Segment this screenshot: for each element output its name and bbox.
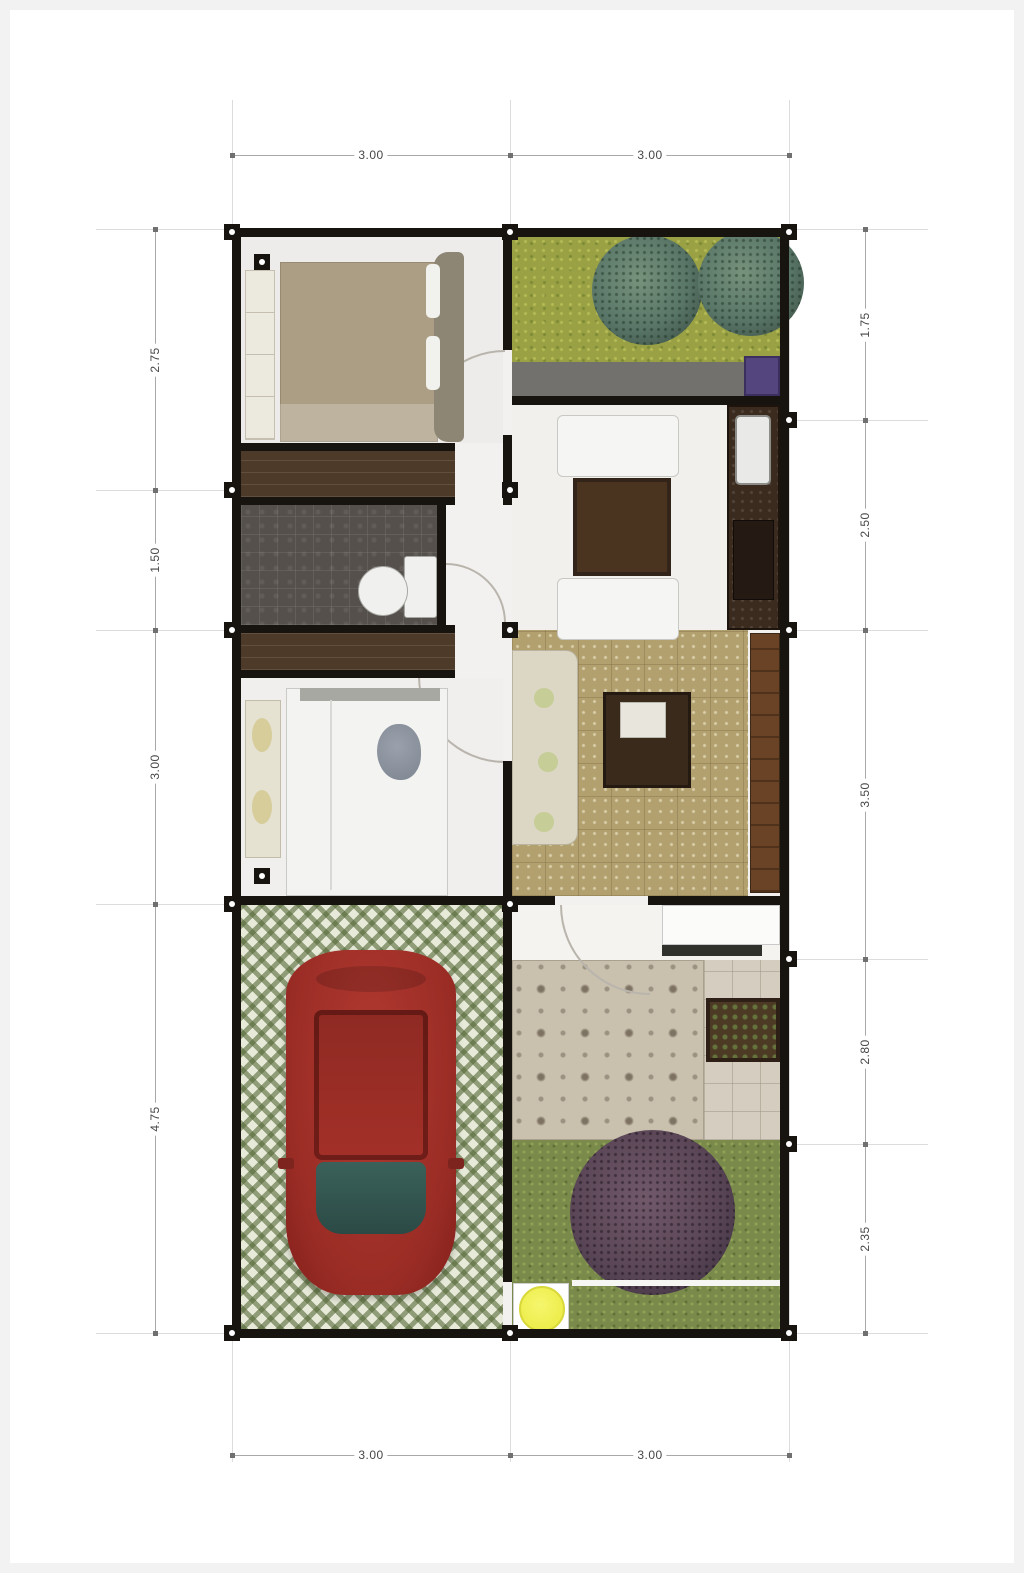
wardrobe-decor — [252, 718, 272, 752]
car-windshield — [316, 1162, 426, 1234]
dining-chair — [557, 578, 679, 640]
column-marker — [781, 1136, 797, 1152]
floor-plan: 3.00 3.00 3.00 3.00 2.75 1.50 3.00 4.75 … — [0, 0, 1024, 1573]
dimension-label-left-2: 1.50 — [148, 543, 162, 576]
dimension-label-top-1: 3.00 — [354, 148, 387, 162]
column-marker — [502, 224, 518, 240]
grid-line-horizontal — [786, 229, 928, 230]
dimension-tick — [863, 227, 868, 232]
column-marker — [254, 254, 270, 270]
wall-outer-right — [780, 228, 789, 1338]
dining-chair — [557, 415, 679, 477]
porch-bench — [662, 905, 780, 945]
column-marker — [502, 622, 518, 638]
dimension-tick — [863, 1331, 868, 1336]
car-roof — [314, 1010, 428, 1160]
dimension-tick — [508, 153, 513, 158]
column-marker — [781, 951, 797, 967]
garden-fence-line — [572, 1280, 789, 1286]
dimension-label-right-3: 3.50 — [858, 778, 872, 811]
dimension-tick — [863, 1142, 868, 1147]
blanket-fold — [330, 700, 332, 890]
dimension-label-right-1: 1.75 — [858, 308, 872, 341]
column-marker — [224, 224, 240, 240]
garden-planter-purple — [744, 356, 780, 396]
dimension-label-right-2: 2.50 — [858, 508, 872, 541]
pillow-gray — [377, 724, 421, 780]
dimension-label-right-5: 2.35 — [858, 1222, 872, 1255]
grid-line-horizontal — [96, 904, 236, 905]
wall-interior — [241, 670, 455, 678]
dimension-tick — [230, 153, 235, 158]
grid-line-horizontal — [96, 229, 236, 230]
wall-interior — [241, 497, 455, 505]
column-marker — [781, 1325, 797, 1341]
bed-2 — [286, 688, 448, 896]
grid-line-horizontal — [96, 630, 236, 631]
dimension-tick — [153, 488, 158, 493]
sofa-cushion — [534, 688, 554, 708]
column-marker — [224, 1325, 240, 1341]
car-mirror — [278, 1158, 294, 1169]
bed-1-sheet — [280, 404, 438, 442]
dimension-tick — [863, 418, 868, 423]
grid-line-horizontal — [786, 630, 928, 631]
car-mirror — [448, 1158, 464, 1169]
dining-table — [573, 478, 671, 576]
garden-path — [512, 362, 746, 396]
dimension-label-left-1: 2.75 — [148, 343, 162, 376]
porch-step-shadow — [662, 945, 762, 956]
wall-interior — [512, 396, 789, 405]
column-marker — [502, 482, 518, 498]
dimension-label-top-2: 3.00 — [633, 148, 666, 162]
kitchen-sink — [735, 415, 771, 485]
wall-interior — [241, 443, 455, 451]
dimension-label-bottom-1: 3.00 — [354, 1448, 387, 1462]
car-icon — [286, 950, 456, 1295]
sofa-cushion — [534, 812, 554, 832]
column-marker — [224, 622, 240, 638]
dimension-tick — [787, 1453, 792, 1458]
wall-interior — [503, 237, 512, 350]
dimension-label-bottom-2: 3.00 — [633, 1448, 666, 1462]
wall-interior — [437, 505, 446, 625]
grid-line-horizontal — [786, 420, 928, 421]
wall-interior — [241, 625, 455, 633]
wall-carport-divider — [503, 905, 512, 1282]
dimension-tick — [787, 153, 792, 158]
pillow — [426, 336, 440, 390]
kitchen-stove — [733, 520, 774, 600]
column-marker — [781, 412, 797, 428]
column-marker — [502, 896, 518, 912]
column-marker — [781, 622, 797, 638]
dimension-tick — [508, 1453, 513, 1458]
dimension-tick — [863, 628, 868, 633]
dimension-label-right-4: 2.80 — [858, 1035, 872, 1068]
table-tray — [620, 702, 666, 738]
column-marker — [781, 224, 797, 240]
column-marker — [254, 868, 270, 884]
car-rear-shade — [316, 966, 426, 992]
dimension-tick — [153, 1331, 158, 1336]
toilet-bowl — [358, 566, 408, 616]
dimension-tick — [153, 628, 158, 633]
wardrobe-decor — [252, 790, 272, 824]
cabinet-strip — [241, 451, 455, 497]
wall-outer-left — [232, 228, 241, 1338]
toilet-tank — [404, 556, 437, 618]
dimension-label-left-4: 4.75 — [148, 1102, 162, 1135]
pillow — [426, 264, 440, 318]
tree-icon — [592, 235, 702, 345]
grid-line-horizontal — [96, 490, 236, 491]
grid-line-horizontal — [786, 959, 928, 960]
terrace-floor — [512, 960, 704, 1140]
column-marker — [502, 1325, 518, 1341]
lamp-base — [513, 1283, 569, 1333]
large-tree-icon — [570, 1130, 735, 1295]
grid-line-horizontal — [786, 1333, 928, 1334]
column-marker — [224, 482, 240, 498]
terrace-planter — [706, 998, 780, 1062]
dimension-tick — [230, 1453, 235, 1458]
sofa-cushion — [538, 752, 558, 772]
bed-2-headboard — [300, 688, 440, 701]
wardrobe — [245, 270, 275, 440]
dimension-tick — [863, 957, 868, 962]
column-marker — [224, 896, 240, 912]
dimension-label-left-3: 3.00 — [148, 750, 162, 783]
cabinet-strip — [241, 633, 455, 670]
yellow-lamp-icon — [519, 1286, 565, 1332]
grid-line-horizontal — [96, 1333, 236, 1334]
grid-line-horizontal — [786, 1144, 928, 1145]
tv-cabinet — [750, 633, 780, 893]
dimension-tick — [153, 902, 158, 907]
wall-interior — [503, 761, 512, 896]
dimension-tick — [153, 227, 158, 232]
wall-interior — [648, 896, 781, 905]
